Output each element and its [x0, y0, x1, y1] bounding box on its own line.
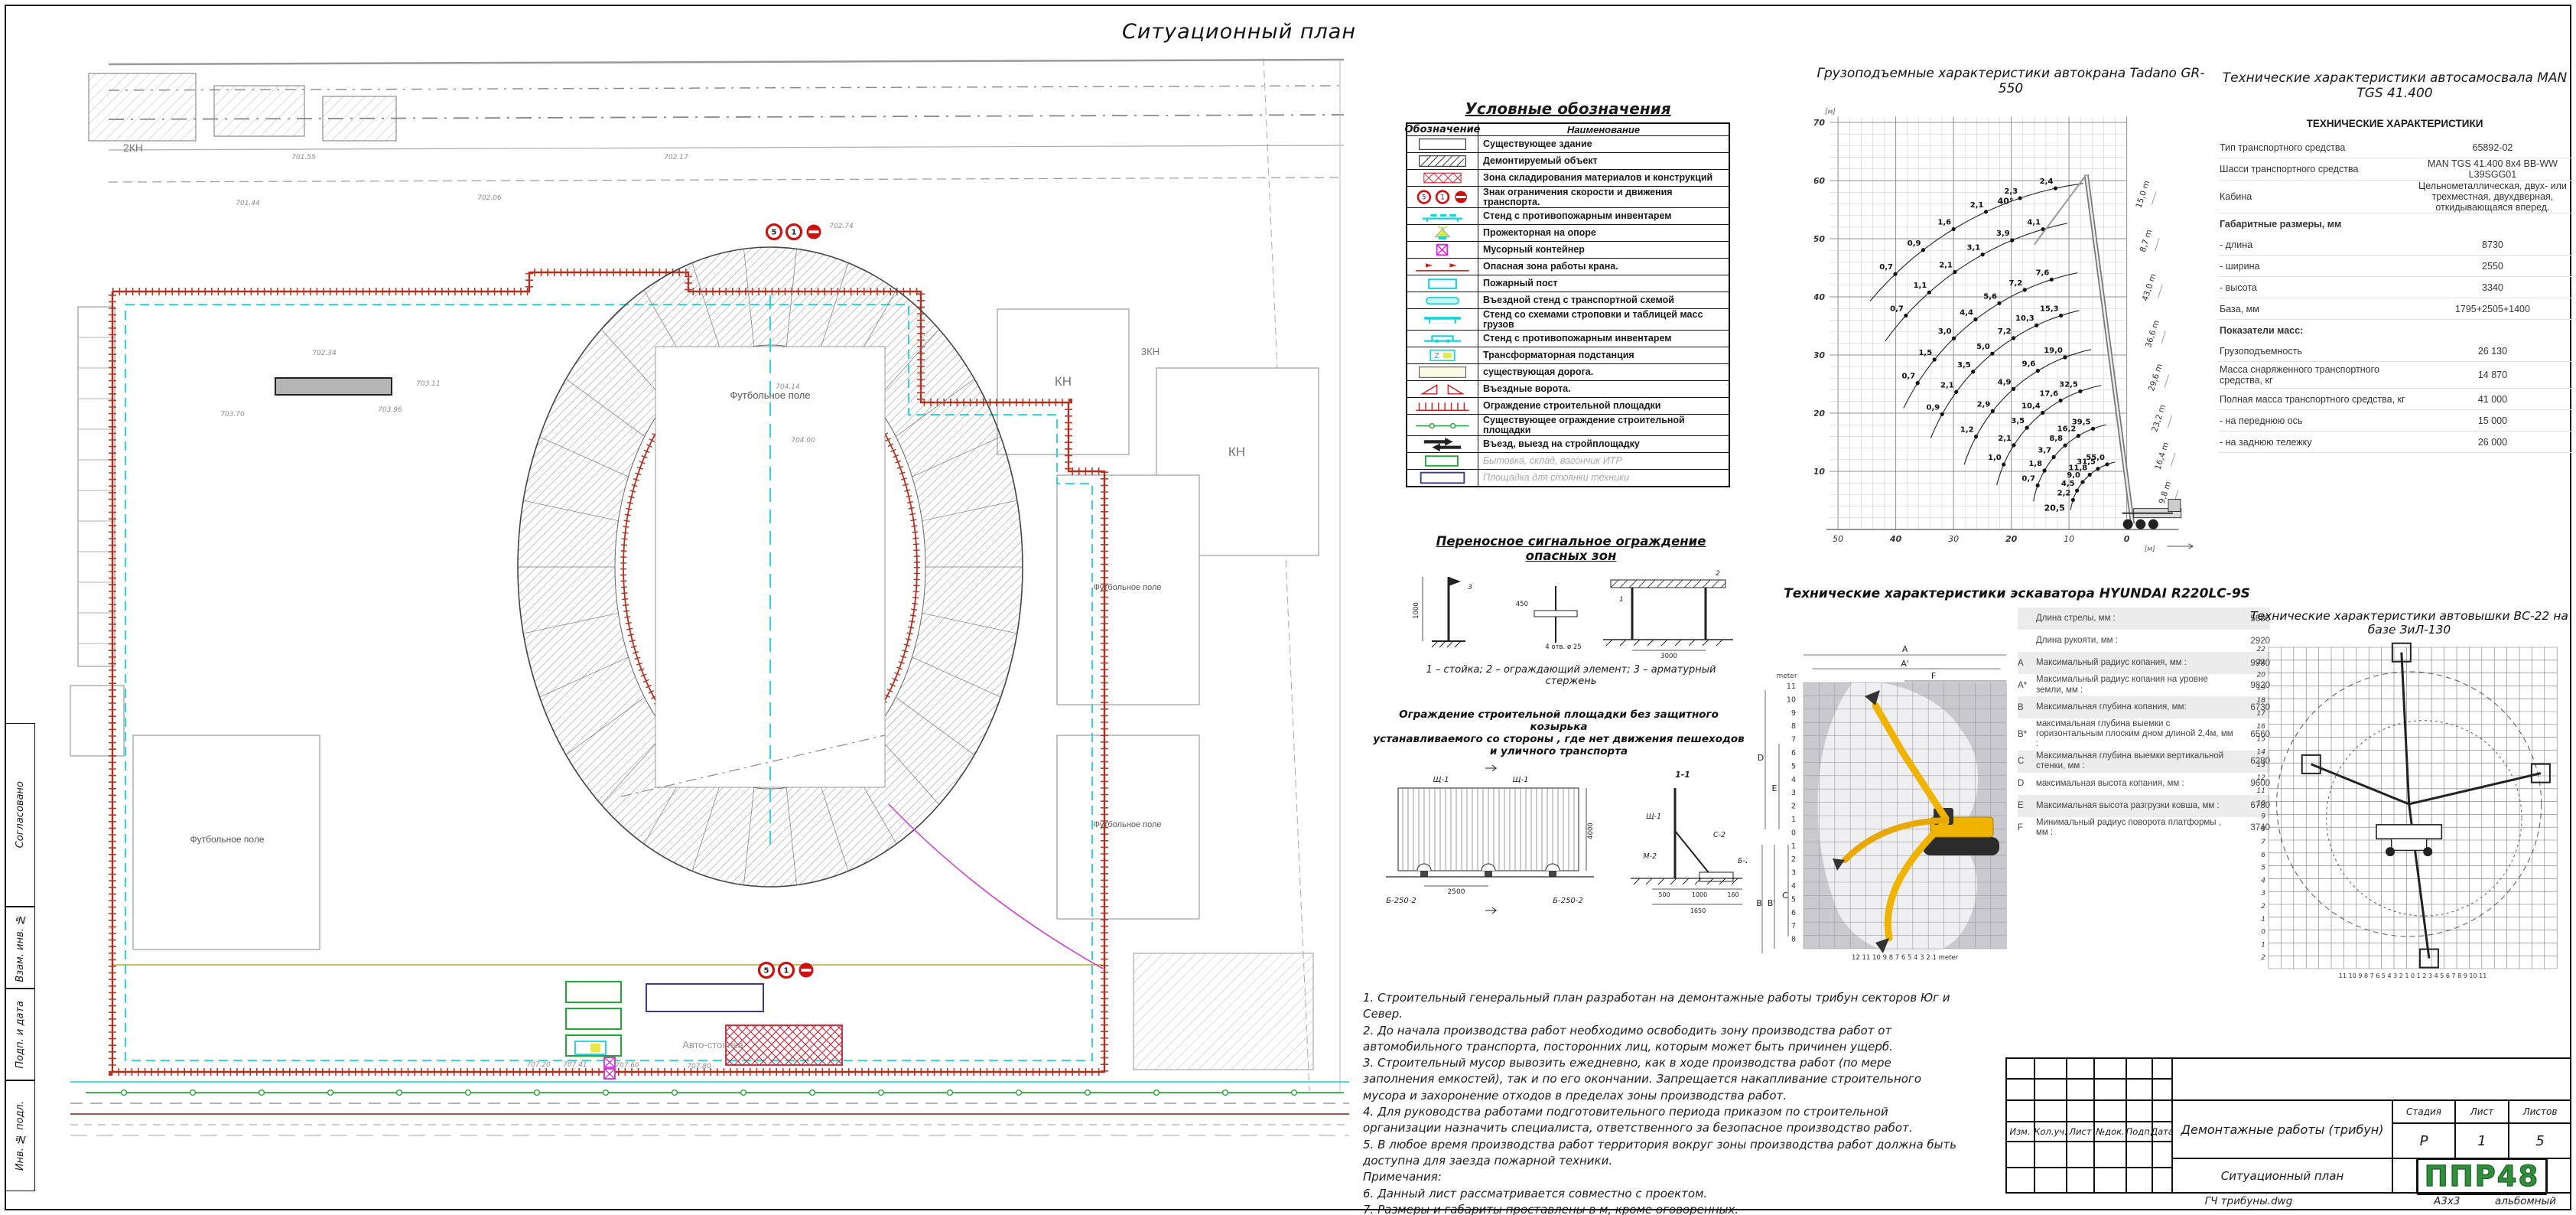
y-axis-number: 14 [2257, 748, 2266, 756]
capacity-label: 1,2 [1960, 426, 1974, 435]
plan-label: Футбольное поле [1094, 820, 1162, 829]
man-table-title: Технические характеристики автосамосвала… [2218, 70, 2571, 101]
capacity-point [1904, 314, 1908, 318]
truck-wheel [2386, 847, 2395, 856]
elevation-label: 702.17 [664, 154, 688, 161]
legend-row: Стенд со схемами строповки и таблицей ма… [1407, 309, 1729, 331]
elevation-label: 704.14 [776, 383, 800, 391]
legend-name: Опасная зона работы крана. [1478, 259, 1729, 275]
legend-symbol-icon [1409, 170, 1476, 186]
legend-symbol-icon [1409, 311, 1476, 327]
capacity-label: 7,6 [2036, 269, 2050, 277]
legend-title: Условные обозначения [1406, 99, 1730, 118]
legend-row: Существующее здание [1407, 136, 1729, 153]
y-axis-number: 1 [2261, 941, 2265, 949]
capacity-label: 4,1 [2027, 219, 2041, 227]
svg-text:Z: Z [1434, 352, 1439, 360]
plan-label: Авто-стоянка [682, 1039, 743, 1051]
site-plan: 5151Футбольное полеФутбольное полеФутбол… [40, 43, 1358, 1195]
boom-length-label: 15,0 m [2134, 180, 2152, 210]
capacity-label: 15,3 [2040, 305, 2059, 313]
legend-row: 51Знак ограничения скорости и движения т… [1407, 187, 1729, 208]
dim-letter: F [1931, 671, 1936, 681]
y-axis-number: 0 [2261, 929, 2265, 936]
capacity-point [2063, 444, 2067, 448]
legend-name: Стенд со схемами строповки и таблицей ма… [1478, 309, 1729, 330]
excavator-spec-row: A*Максимальный радиус копания на уровне … [2018, 674, 2270, 696]
legend-name: Демонтируемый объект [1478, 153, 1729, 169]
crane-chart-title: Грузоподъемные характеристики автокрана … [1814, 66, 2207, 96]
road-line [109, 178, 1344, 182]
capacity-point [1893, 272, 1897, 276]
y-tick: 10 [1814, 467, 1825, 477]
legend-symbol-icon [1409, 242, 1476, 258]
y-axis-number: 21 [2257, 659, 2265, 666]
dim-height: 1000 [1413, 602, 1420, 619]
truck-body [2376, 825, 2441, 839]
legend-row: Стенд с противопожарным инвентарем [1407, 208, 1729, 225]
legend-row: существующая дорога. [1407, 364, 1729, 381]
y-axis-number: 22 [2257, 646, 2266, 653]
revision-cell [2094, 1168, 2126, 1194]
capacity-point [1933, 357, 1937, 361]
revision-cell [2005, 1100, 2034, 1122]
spec-label: максимальная глубина выемки с горизонтал… [2036, 719, 2233, 750]
man-table-row: Шасси транспортного средстваMAN TGS 41.4… [2218, 158, 2571, 181]
man-table-row: Тип транспортного средства65892-02 [2218, 137, 2571, 158]
capacity-point [1984, 210, 1988, 213]
capacity-point [2050, 278, 2054, 282]
side-strip-label: Подп. и дата [15, 1001, 26, 1069]
capacity-label: 4,5 [2061, 480, 2075, 488]
annotation: 40° [1998, 196, 2014, 206]
parcel-line [1264, 58, 1309, 1091]
capacity-point [2036, 369, 2040, 373]
dim-letter: D [1758, 753, 1764, 763]
legend-symbol-icon: 51 [1409, 189, 1476, 205]
bytovka [566, 1008, 621, 1029]
note-line: 4. Для руководства работами подготовител… [1363, 1104, 1960, 1137]
capacity-label: 7,2 [2009, 279, 2023, 288]
elevation-label: 704.00 [791, 437, 815, 445]
legend-name: Существующее ограждение строительной пло… [1478, 415, 1729, 435]
y-axis-number: 5 [2261, 865, 2265, 872]
man-row-label: Грузоподъемность [2218, 344, 2414, 359]
y-axis-number: 6 [2261, 852, 2265, 859]
signal-fence-caption: 1 – стойка; 2 – ограждающий элемент; 3 –… [1406, 664, 1736, 687]
y-axis-number: 20 [2257, 672, 2266, 679]
y-axis-number: 11 [2257, 787, 2265, 795]
man-table-row: Масса снаряженного транспортного средств… [2218, 362, 2571, 389]
man-row-label: Полная масса транспортного средства, кг [2218, 392, 2414, 407]
boom-bracket [2168, 415, 2172, 428]
man-table-row: Грузоподъемность26 130 [2218, 340, 2571, 362]
capacity-point [1997, 301, 2001, 305]
capacity-label: 2,1 [1970, 201, 1984, 210]
capacity-label: 32,5 [2059, 380, 2078, 389]
s-m2: М-2 [1643, 852, 1657, 861]
road-object [275, 378, 392, 395]
capacity-label: 19,0 [2044, 347, 2063, 355]
legend-row: Прожекторная на опоре [1407, 225, 1729, 242]
drawing-sheet: Ситуационный план СогласованоВзам. инв. … [0, 0, 2576, 1215]
capacity-label: 2,1 [1998, 435, 2012, 443]
spec-letter: D [2018, 779, 2036, 788]
boom-bracket [2161, 331, 2166, 344]
excavator-spec-row: Длина стрелы, мм :5680 [2018, 607, 2270, 630]
boom-length-label: 23,2 m [2150, 403, 2168, 433]
capacity-point [1971, 370, 1975, 373]
post-foot [1485, 871, 1492, 877]
signal-fence-section: Переносное сигнальное ограждение опасных… [1406, 534, 1736, 687]
fence-node [1085, 1090, 1091, 1096]
meter-label: meter [1776, 673, 1797, 680]
legend-row: Мусорный контейнер [1407, 242, 1729, 259]
truck-wheel [2423, 847, 2432, 856]
revision-cell [2094, 1100, 2126, 1122]
elevation-label: 701.44 [236, 200, 260, 207]
revision-cell [2126, 1168, 2152, 1194]
revision-cell [2067, 1079, 2094, 1100]
capacity-label: 0,7 [2021, 474, 2035, 483]
legend-symbol [1407, 364, 1478, 380]
signal-fence-sketch: 100034504 отв. ø 25300012 [1406, 563, 1736, 661]
capacity-label: 55,0 [2086, 454, 2105, 462]
reach-circle-2 [2327, 721, 2522, 916]
callout-1: 1 [1619, 596, 1624, 604]
elevation-label: 703.11 [416, 380, 441, 388]
block [1699, 872, 1733, 881]
excavator-section: Технические характеристики эскаватора HY… [1753, 586, 2281, 967]
capacity-label: 1,1 [1914, 282, 1927, 290]
y-axis-number: 10 [1787, 695, 1796, 704]
truck-cab [2392, 839, 2427, 850]
legend-symbol-icon [1409, 292, 1476, 308]
capacity-point [2002, 462, 2005, 466]
label-block1: Б-250-2 [1386, 897, 1416, 905]
building [214, 86, 304, 136]
man-row-value: 26 130 [2414, 346, 2571, 357]
label-sch2: Щ-1 [1513, 776, 1529, 784]
legend-symbol-icon [1409, 453, 1476, 469]
man-table-row: - на переднюю ось15 000 [2218, 410, 2571, 432]
fence-node [810, 1090, 815, 1096]
man-table-row: - на заднюю тележку26 000 [2218, 432, 2571, 453]
capacity-label: 1,6 [1937, 219, 1951, 227]
flag [1449, 577, 1461, 586]
boom-length-label: 16,4 m [2153, 441, 2171, 471]
tech-parking [646, 984, 763, 1011]
man-row-value: 26 000 [2414, 437, 2571, 448]
legend-col-name: Наименование [1478, 124, 1729, 135]
revision-cell [2005, 1079, 2034, 1100]
fence-node [1016, 1090, 1022, 1096]
transformer-core [590, 1044, 600, 1052]
y-axis-number: 1 [1791, 842, 1796, 851]
man-row-label: Габаритные размеры, мм [2218, 217, 2415, 232]
capacity-point [2063, 355, 2067, 359]
capacity-point [1990, 352, 1994, 356]
revision-cell [2005, 1142, 2034, 1168]
crane-wheel [2123, 520, 2133, 529]
spec-label: Минимальный радиус поворота платформы , … [2036, 818, 2233, 838]
label-sch1: Щ-1 [1433, 776, 1449, 784]
sign-glyph: 1 [784, 967, 789, 976]
revision-cell [2152, 1168, 2172, 1194]
y-axis-number: 18 [2257, 697, 2266, 705]
x-tick: 30 [1948, 534, 1959, 544]
legend-name: Площадка для стоянки техники [1478, 470, 1729, 486]
man-table-row: - длина8730 [2218, 234, 2571, 256]
x-unit: [м] [2145, 546, 2155, 553]
capacity-label: 1,5 [1918, 349, 1932, 357]
revision-cell [2094, 1079, 2126, 1100]
elevation-label: 707.20 [526, 1061, 551, 1069]
legend-symbol [1407, 415, 1478, 435]
capacity-point [1973, 318, 1977, 321]
doc-title-cell: Демонтажные работы (трибун) [2172, 1100, 2392, 1158]
capacity-label: 3,1 [1966, 244, 1980, 252]
legend-symbol-icon [1409, 331, 1476, 347]
legend-name: Въездной стенд с транспортной схемой [1478, 292, 1729, 308]
side-strip-label: Инв. № подл. [15, 1101, 26, 1171]
capacity-label: 2,4 [2040, 178, 2054, 186]
legend-row: Опасная зона работы крана. [1407, 259, 1729, 275]
legend-symbol-icon [1409, 364, 1476, 380]
man-row-value: MAN TGS 41.400 8x4 BB-WW L39SGG01 [2414, 158, 2571, 180]
dim-span: 2500 [1448, 888, 1465, 896]
boom-length-label: 43,0 m [2141, 272, 2158, 302]
y-axis-number: 4 [2261, 877, 2265, 884]
y-axis-number: 8 [1791, 936, 1796, 944]
elevation-label: 703.70 [220, 411, 245, 419]
legend-row: ZТрансформаторная подстанция [1407, 347, 1729, 364]
capacity-label: 0,7 [1890, 305, 1904, 313]
y-axis-number: 12 [2257, 774, 2266, 782]
side-strip-box: Подп. и дата [5, 989, 35, 1080]
crane-cab [2168, 499, 2181, 511]
page-title: Ситуационный план [1055, 20, 1423, 44]
revision-cell [2126, 1100, 2152, 1122]
legend-name: Мусорный контейнер [1478, 242, 1729, 258]
legend-row: Стенд с противопожарным инвентарем [1407, 331, 1729, 347]
stage-value-cell: Р [2392, 1123, 2455, 1158]
capacity-point [2042, 468, 2046, 472]
spec-label: Длина стрелы, мм : [2036, 614, 2233, 624]
man-row-value: 2550 [2414, 261, 2571, 272]
y-axis-number: 13 [2257, 761, 2266, 769]
capacity-label: 0,7 [1901, 373, 1915, 381]
capacity-point [2077, 434, 2080, 438]
x-tick: 20 [2005, 534, 2018, 544]
capacity-label: 3,7 [2038, 446, 2051, 454]
note-line: 5. В любое время производства работ терр… [1363, 1137, 1960, 1170]
man-row-value: 1795+2505+1400 [2414, 304, 2571, 314]
capacity-label: 3,9 [1996, 230, 2010, 238]
man-row-label: - длина [2218, 237, 2414, 252]
capacity-point [2059, 399, 2063, 402]
y-axis-number: 6 [1791, 749, 1796, 757]
man-table-row: Полная масса транспортного средства, кг4… [2218, 389, 2571, 410]
man-row-value: 14 870 [2414, 370, 2571, 380]
y-axis-number: 4 [1791, 882, 1796, 891]
ppr48-logo: ППР48 [2416, 1158, 2548, 1195]
legend-symbol-icon [1409, 436, 1476, 452]
y-axis-number: 2 [1791, 803, 1796, 811]
capacity-label: 5,0 [1976, 343, 1990, 351]
crane-load-chart: 5040302010010203040506070[м][м]0,70,91,6… [1814, 96, 2207, 562]
man-table-row: КабинаЦельнометаллическая, двух- или тре… [2218, 181, 2571, 213]
fence-node [741, 1090, 746, 1096]
man-row-value: 65892-02 [2414, 142, 2571, 153]
d4: 1650 [1690, 907, 1706, 914]
side-strip-box: Взам. инв. № [5, 907, 35, 989]
legend-row: Бытовка, склад, вагончик ИТР [1407, 453, 1729, 470]
capacity-label: 7,2 [1998, 327, 2012, 336]
legend-name: Существующее здание [1478, 136, 1729, 152]
excavator-spec-table: Длина стрелы, мм :5680Длина рукояти, мм … [2018, 607, 2270, 967]
spec-label: Максимальная глубина выемки вертикальной… [2036, 751, 2233, 771]
fence-node [1154, 1090, 1160, 1096]
excavator-spec-row: AМаксимальный радиус копания, мм :9980 [2018, 652, 2270, 674]
man-row-label: - на переднюю ось [2218, 413, 2414, 428]
stage-label-cell: Стадия [2392, 1100, 2455, 1123]
note-line: 1. Строительный генеральный план разрабо… [1363, 990, 1960, 1023]
legend-symbol [1407, 309, 1478, 330]
y-axis-number: 1 [2261, 916, 2265, 923]
excavator-spec-row: EМаксимальная высота разгрузки ковша, мм… [2018, 795, 2270, 817]
y-axis-number: 17 [2257, 710, 2266, 718]
plan-label: Футбольное поле [730, 389, 810, 401]
capacity-label: 3,5 [1957, 361, 1971, 370]
boom-length-label: 8,7 m [2139, 229, 2155, 253]
section-mark: 1-1 [1675, 770, 1690, 780]
y-axis-number: 15 [2257, 736, 2266, 744]
y-tick: 70 [1814, 118, 1825, 128]
plan-label: 3КН [1141, 346, 1160, 357]
fence-node [122, 1090, 127, 1096]
man-row-value: 41 000 [2414, 394, 2571, 405]
y-tick: 20 [1814, 409, 1825, 419]
y-axis-number: 2 [2261, 954, 2265, 962]
legend-symbol [1407, 208, 1478, 224]
capacity-point [2075, 489, 2079, 493]
fence-node [603, 1090, 609, 1096]
capacity-point [2012, 387, 2015, 391]
capacity-point [2078, 389, 2082, 393]
revision-header-cell: Лист [2067, 1122, 2094, 1142]
elevation-label: 701.55 [291, 154, 316, 161]
excavator-spec-row: CМаксимальная глубина выемки вертикально… [2018, 751, 2270, 773]
d1: 500 [1658, 891, 1670, 898]
man-table-row: - ширина2550 [2218, 256, 2571, 277]
legend-symbol [1407, 225, 1478, 241]
revision-cell [2126, 1079, 2152, 1100]
legend-row: Площадка для стоянки техники [1407, 470, 1729, 486]
y-axis-number: 1 [1791, 816, 1796, 824]
capacity-point [1916, 381, 1920, 385]
y-axis-number: 8 [1791, 722, 1796, 731]
file-name: ГЧ трибуны.dwg [2134, 1195, 2363, 1207]
spec-label: Максимальный радиус копания на уровне зе… [2036, 675, 2233, 695]
fence-node [397, 1090, 402, 1096]
legend-symbol [1407, 259, 1478, 275]
dim-letter: C [1782, 891, 1788, 901]
man-table-row: База, мм1795+2505+1400 [2218, 298, 2571, 320]
revision-cell [2034, 1079, 2067, 1100]
capacity-label: 8,8 [2049, 435, 2063, 443]
capacity-label: 1,0 [1988, 454, 2002, 462]
excavator-spec-row: BМаксимальная глубина копания, мм:6730 [2018, 696, 2270, 718]
y-axis-number: 3 [2261, 890, 2265, 897]
y-axis-number: 2 [2261, 903, 2265, 910]
excavator-title: Технические характеристики эскаватора HY… [1753, 586, 2281, 601]
boom-bracket [2152, 191, 2156, 204]
crane-wheel [2148, 520, 2158, 529]
tower-diagram: 2221201918171615141312111098765432101211… [2243, 637, 2564, 982]
crane-wheel [2135, 520, 2145, 529]
note-line: 3. Строительный мусор вывозить ежедневно… [1363, 1055, 1960, 1104]
sign-glyph: 5 [764, 967, 769, 976]
excavator-spec-row: Dмаксимальная высота копания, мм :9600 [2018, 773, 2270, 795]
y-tick: 60 [1814, 176, 1825, 186]
elevation-label: 702.34 [312, 350, 337, 357]
excavator-spec-row: B*максимальная глубина выемки с горизонт… [2018, 718, 2270, 751]
revision-cell [2034, 1100, 2067, 1122]
revision-cell [2034, 1142, 2067, 1168]
ground-hatch [1432, 641, 1461, 647]
capacity-point [1974, 435, 1978, 438]
capacity-label: 5,6 [1983, 292, 1997, 301]
legend-name: существующая дорога. [1478, 364, 1729, 380]
ground-hatch [1606, 640, 1722, 646]
elevation-label: 707.80 [687, 1063, 711, 1070]
legend: Условные обозначения ОбозначениеНаименов… [1406, 99, 1730, 487]
plan-label: Футбольное поле [1094, 583, 1162, 592]
legend-name: Ограждение строительной площадки [1478, 398, 1729, 414]
man-table-row: Габаритные размеры, мм [2218, 213, 2571, 234]
capacity-point [2088, 473, 2092, 477]
legend-row: Въездной стенд с транспортной схемой [1407, 292, 1729, 309]
man-table-rows: Тип транспортного средства65892-02Шасси … [2218, 137, 2571, 453]
y-unit: [м] [1825, 108, 1836, 116]
legend-name: Въезд, выезд на стройплощадку [1478, 436, 1729, 452]
legend-symbol [1407, 331, 1478, 347]
capacity-label: 3,5 [2011, 417, 2025, 425]
legend-symbol [1407, 381, 1478, 397]
logo-cell: ППР48 [2392, 1158, 2571, 1194]
dim-letter: B [1756, 898, 1762, 908]
capacity-label: 17,6 [2039, 389, 2058, 398]
capacity-point [2041, 411, 2044, 415]
revision-cell [2094, 1142, 2126, 1168]
man-row-label: Шасси транспортного средства [2218, 161, 2414, 177]
revision-cell [2067, 1168, 2094, 1194]
legend-symbol [1407, 242, 1478, 258]
y-axis-number: 11 [1787, 682, 1796, 691]
spec-letter: B* [2018, 730, 2036, 739]
sheets-label-cell: Листов [2509, 1100, 2571, 1123]
capacity-point [1953, 270, 1956, 274]
capacity-point [2010, 238, 2014, 242]
capacity-point [2105, 462, 2109, 466]
elevation-label: 702.74 [829, 223, 854, 230]
spec-letter: B [2018, 703, 2036, 712]
fence-node [879, 1090, 884, 1096]
man-row-label: - высота [2218, 280, 2414, 295]
tower-section: Технические характеристики автовышки ВС-… [2243, 609, 2576, 985]
man-row-label: База, мм [2218, 301, 2414, 317]
